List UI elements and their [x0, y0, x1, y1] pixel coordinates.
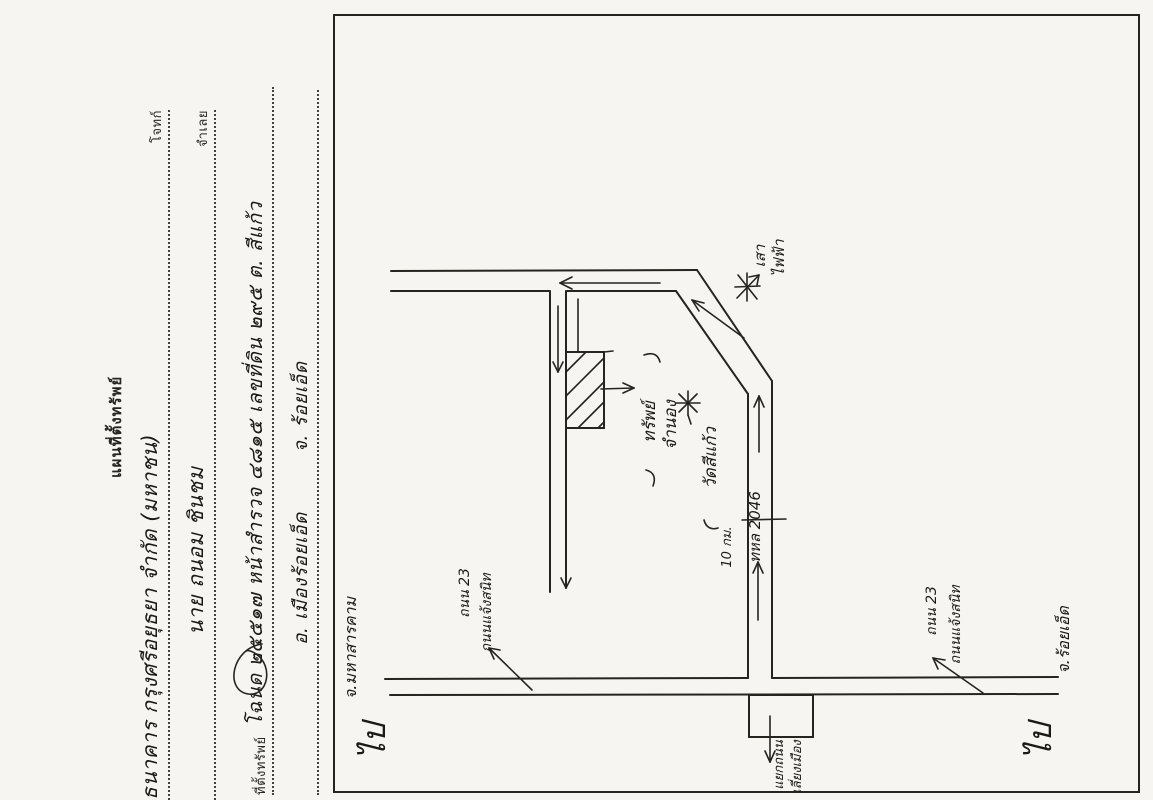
dest-west-label: จ.มหาสารคาม — [341, 595, 360, 699]
map-border — [334, 15, 1139, 792]
utility-pole-icon — [735, 273, 760, 301]
diagonal-road-direction-arrow — [692, 300, 744, 338]
pole-label-line2: ไฟฟ้า — [770, 239, 788, 277]
km-marker-label: 10 กม. — [720, 526, 735, 567]
junction-label-line1: แยกถนน — [772, 739, 787, 790]
handwritten-flourish — [234, 644, 267, 694]
dest-west-prefix: ไป — [355, 718, 393, 759]
hand-drawn-map: ทรัพย์ จำนอง วัดสีแก้ว เสา ไฟฟ้า ทหล 204… — [0, 0, 1153, 800]
junction-box — [749, 695, 813, 737]
property-pointer-arrow — [601, 383, 634, 393]
scanned-document-page: แผนที่ตั้งทรัพย์ ธนาคาร กรุงศรีอยุธยา จำ… — [0, 0, 1153, 800]
bracket-squiggle — [646, 470, 654, 486]
highway-number-label: ทหล 2046 — [746, 491, 764, 563]
pole-label-line1: เสา — [751, 244, 769, 267]
access-road-arrow — [553, 306, 563, 372]
left-road-sign-line2: ถนนแจ้งสนิท — [479, 572, 495, 653]
property-label-line1: ทรัพย์ — [640, 397, 660, 443]
bracket-squiggle — [704, 520, 718, 529]
dest-east-label: จ.ร้อยเอ็ด — [1054, 605, 1073, 674]
junction-label-line2: เลี่ยงเมือง — [787, 739, 805, 794]
right-road-sign-line2: ถนนแจ้งสนิท — [948, 584, 964, 665]
access-road — [550, 291, 578, 592]
left-road-sign-line1: ถนน 23 — [457, 568, 473, 618]
dest-east-prefix: ไป — [1021, 718, 1059, 759]
bracket-squiggle — [644, 354, 660, 362]
top-road-direction-arrow — [560, 277, 660, 289]
right-road-sign-line1: ถนน 23 — [924, 586, 940, 636]
vertical-road-arrow-upper — [754, 396, 764, 452]
vertical-road-arrow-lower — [753, 562, 763, 620]
left-sign-arrow — [489, 648, 532, 690]
temple-label: วัดสีแก้ว — [701, 426, 721, 489]
property-label-line2: จำนอง — [661, 398, 681, 449]
bottom-road — [385, 677, 1058, 695]
